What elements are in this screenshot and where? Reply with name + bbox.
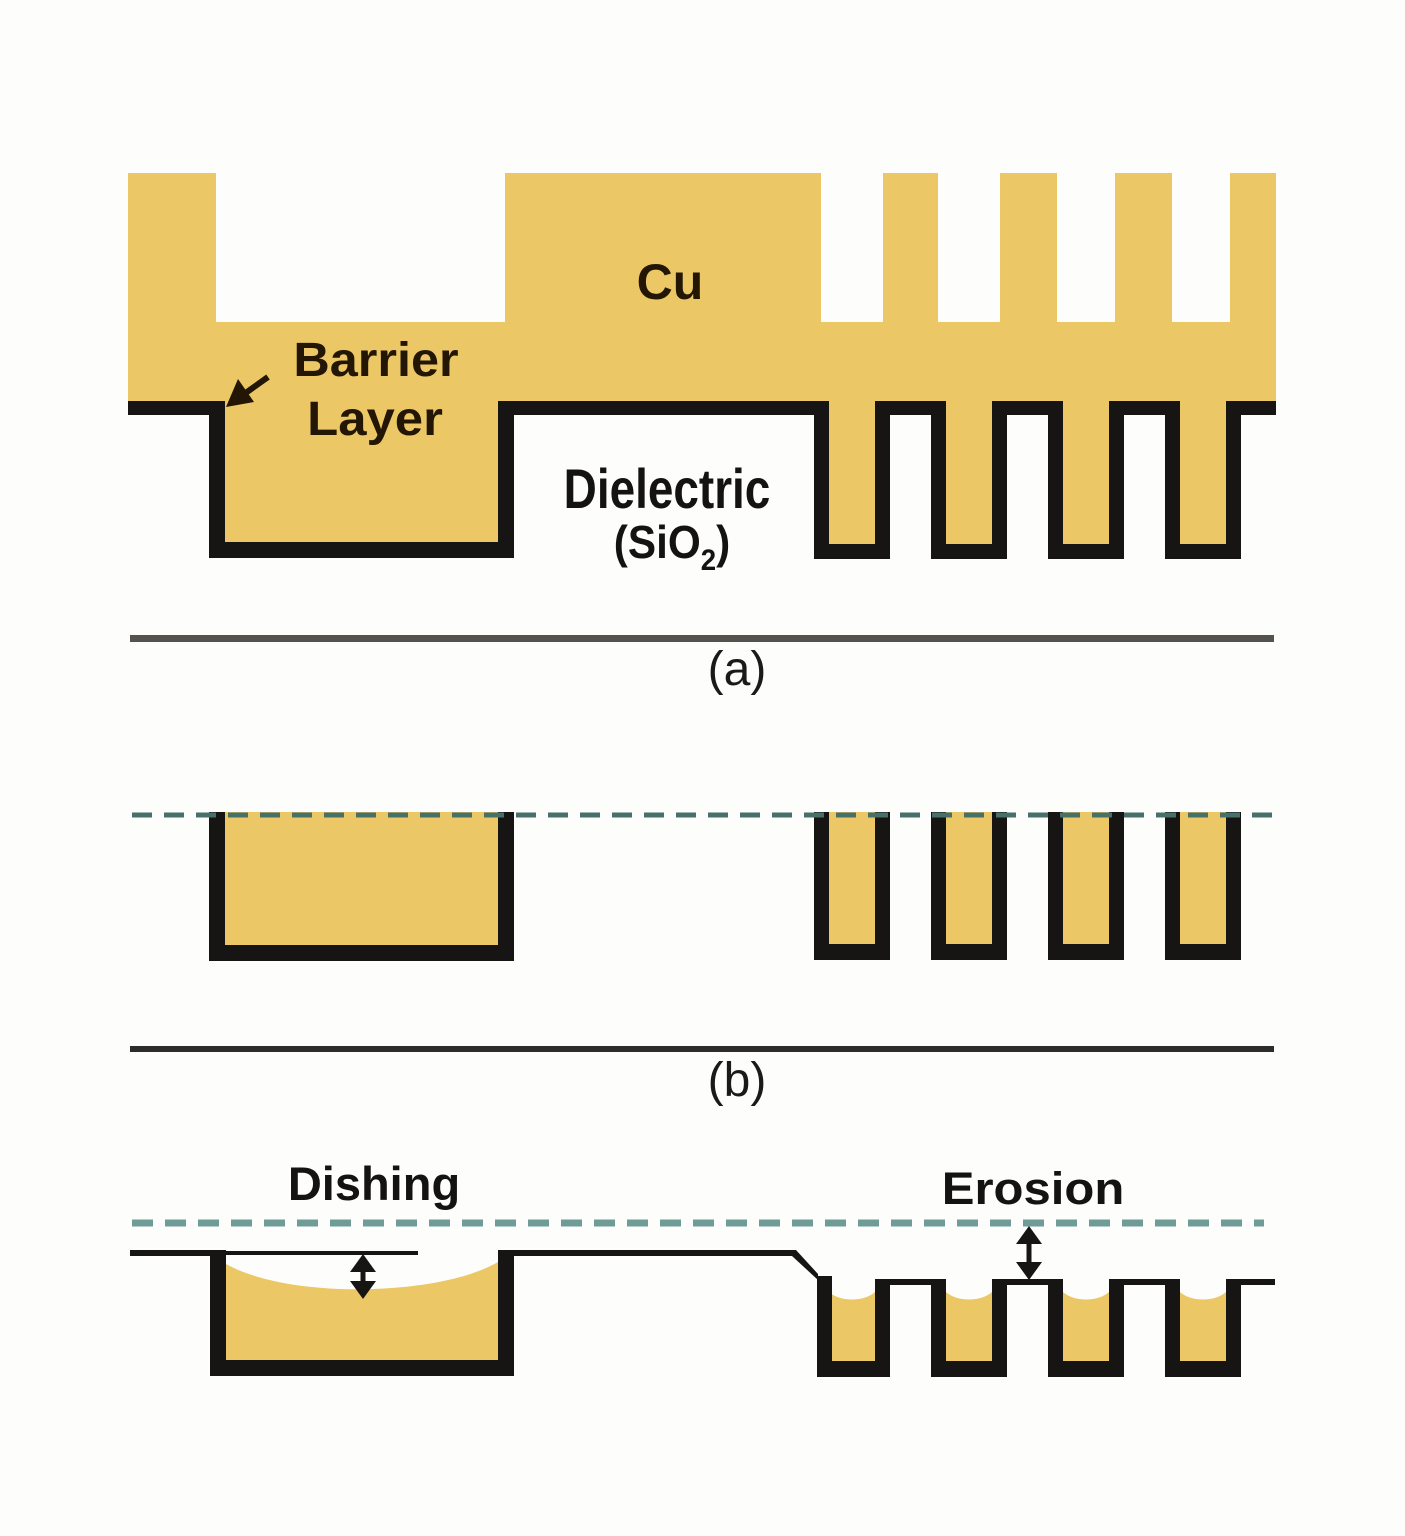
svg-text:Barrier: Barrier	[293, 333, 458, 387]
svg-text:Cu: Cu	[637, 254, 704, 310]
svg-text:Dishing: Dishing	[288, 1157, 460, 1210]
svg-text:Erosion: Erosion	[942, 1163, 1125, 1214]
svg-text:(b): (b)	[708, 1054, 767, 1107]
svg-text:(a): (a)	[708, 643, 767, 696]
svg-text:(SiO2): (SiO2)	[614, 517, 730, 577]
svg-text:Layer: Layer	[307, 392, 443, 445]
svg-text:Dielectric: Dielectric	[564, 458, 771, 520]
